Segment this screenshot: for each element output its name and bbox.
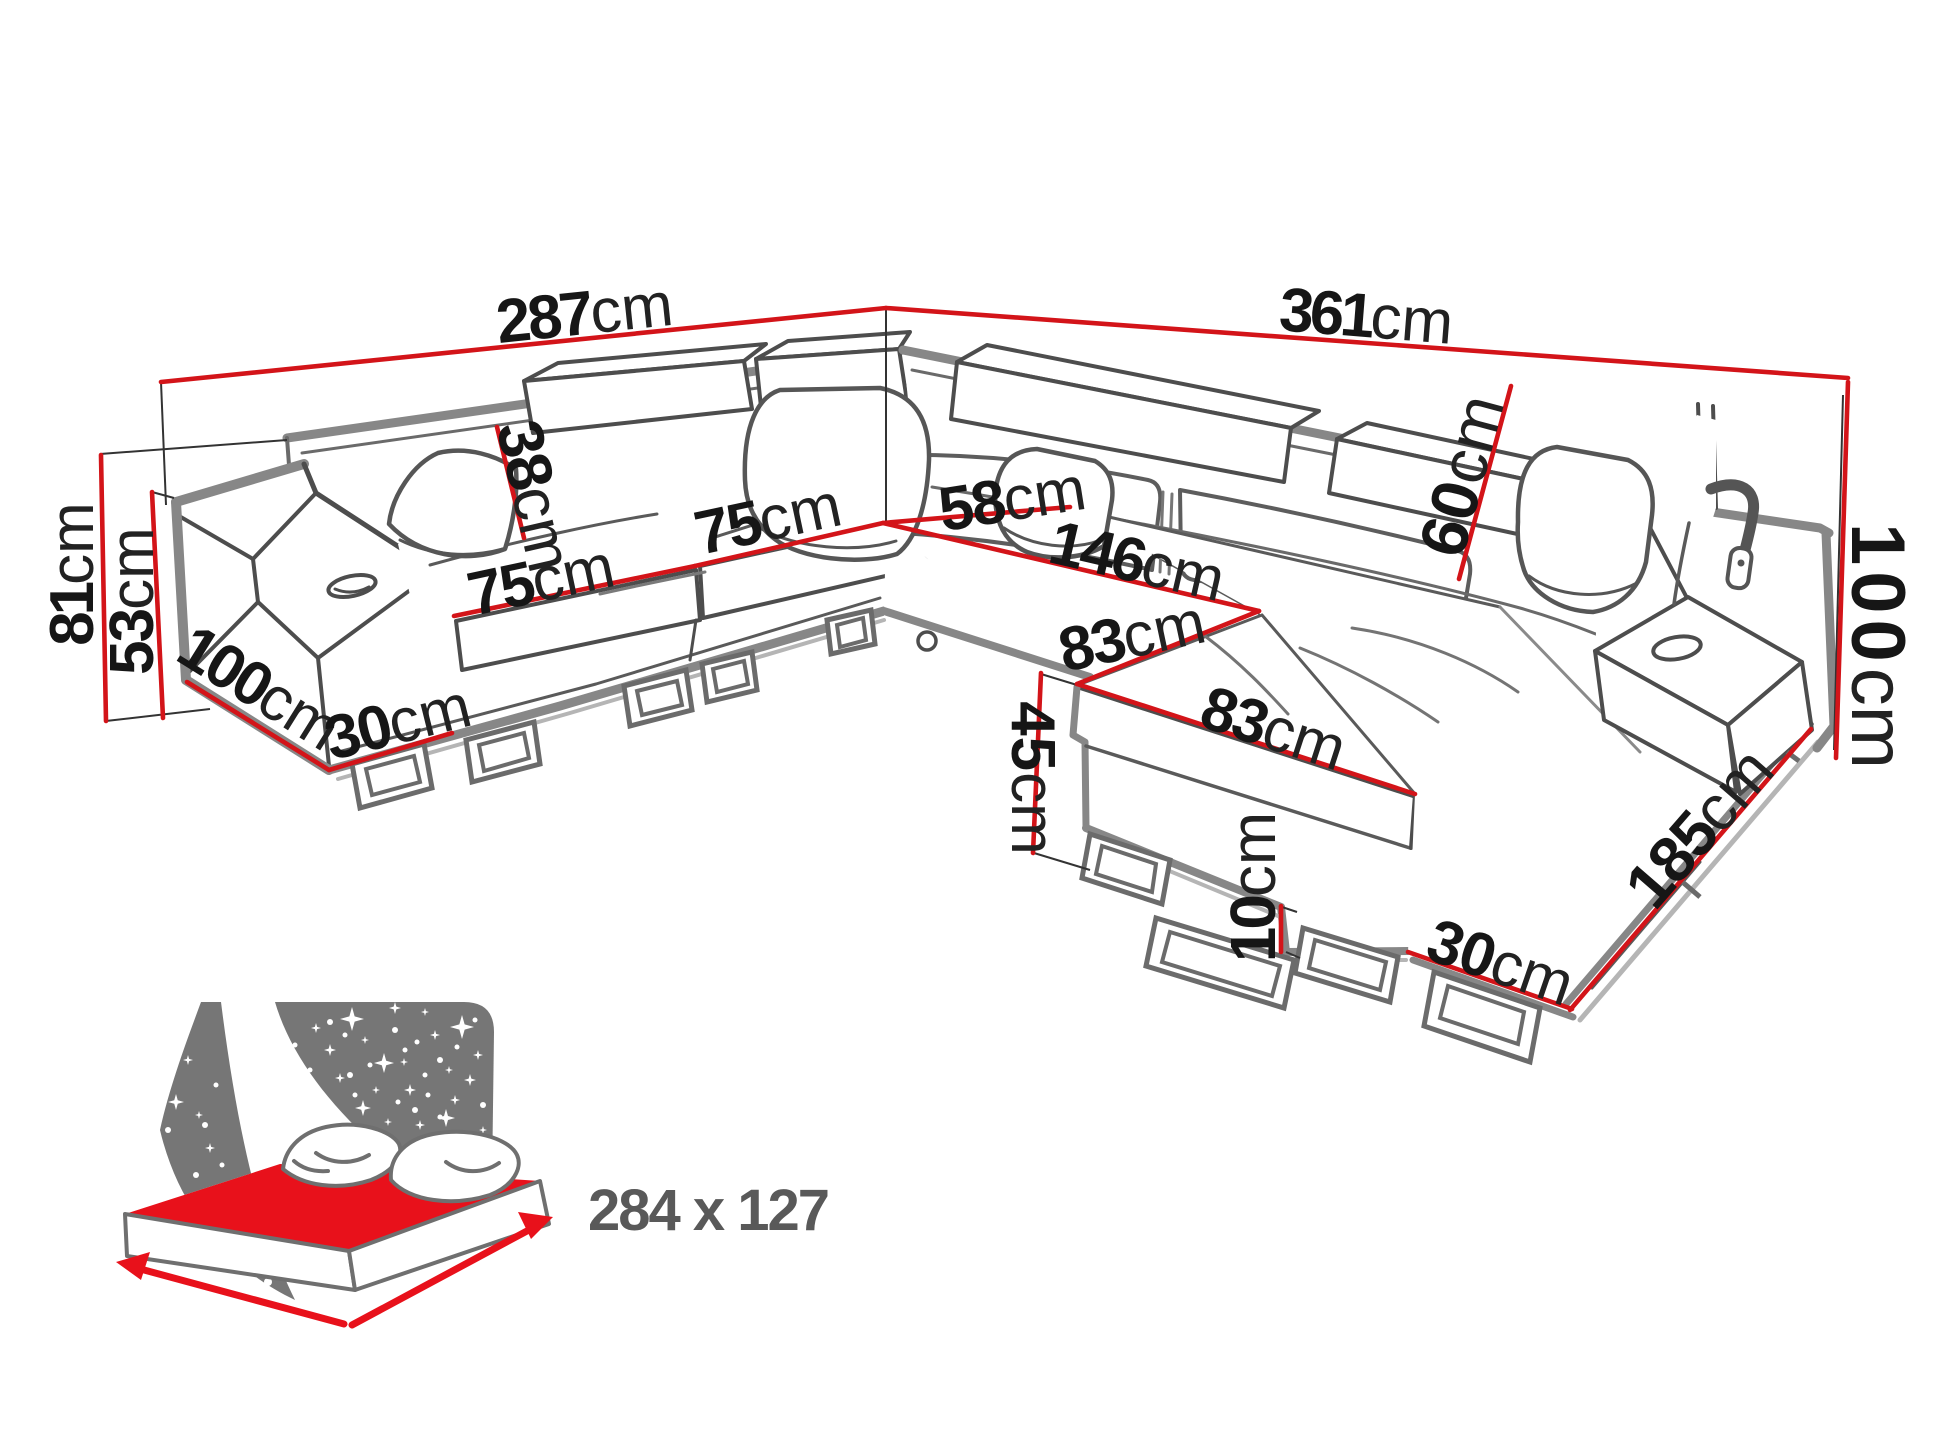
svg-text:45cm: 45cm [998, 701, 1067, 855]
svg-text:361cm: 361cm [1277, 276, 1456, 358]
svg-text:10cm: 10cm [1217, 812, 1289, 963]
svg-text:53cm: 53cm [98, 527, 167, 675]
svg-text:284 x 127: 284 x 127 [588, 1178, 828, 1243]
svg-text:81cm: 81cm [38, 502, 107, 646]
svg-text:100cm: 100cm [1835, 523, 1920, 769]
